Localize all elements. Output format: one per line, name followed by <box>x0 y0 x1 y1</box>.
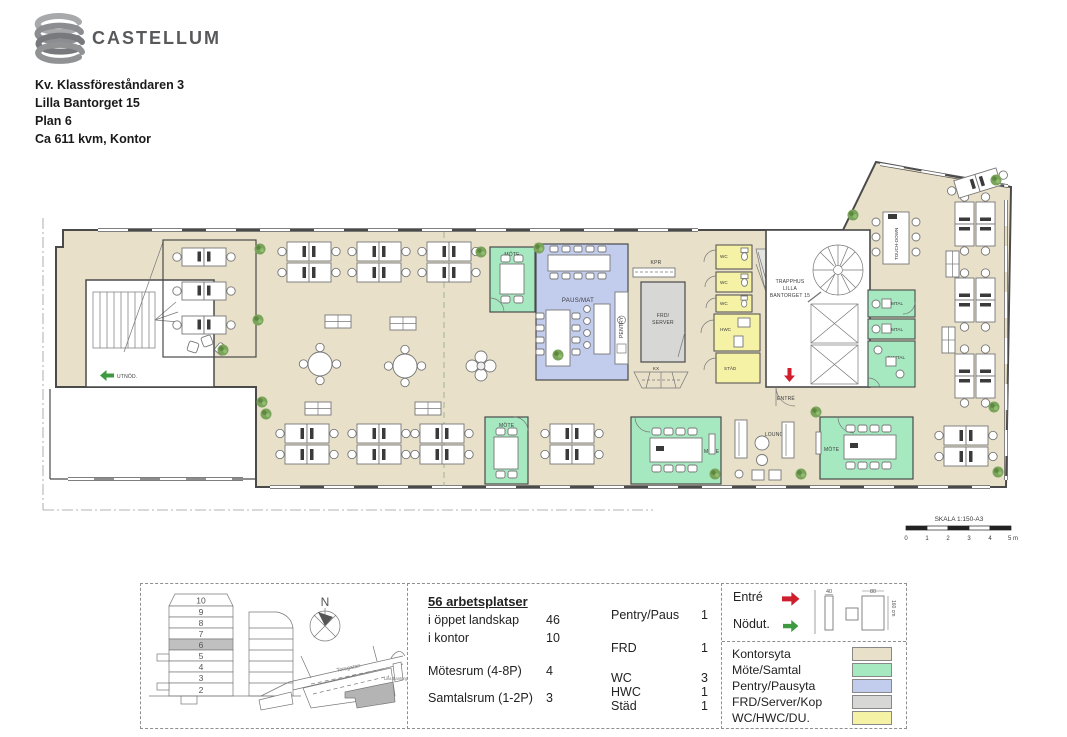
svg-text:7: 7 <box>199 629 204 639</box>
svg-text:STÄD: STÄD <box>724 365 737 371</box>
stat-value: 1 <box>701 608 708 622</box>
legend-row-kontorsyta: Kontorsyta <box>732 646 896 662</box>
scale-bar: SKALA 1:150-A3 0 1 2 3 4 5 m <box>904 516 1018 542</box>
svg-text:KX: KX <box>653 366 659 371</box>
svg-text:KPR: KPR <box>651 260 662 266</box>
area-label: Ca 611 kvm, Kontor <box>35 130 184 148</box>
project-name: Kv. Klassföreståndaren 3 <box>35 76 184 94</box>
svg-text:1: 1 <box>925 536 929 542</box>
room-frd-server: FRD/ SERVER <box>641 282 685 362</box>
room-mote-large-2: MÖTE <box>816 417 913 479</box>
svg-text:3: 3 <box>199 673 204 683</box>
street-label: Torsgatan <box>336 663 361 674</box>
svg-text:WC: WC <box>720 254 728 259</box>
legend-row-frd-server-kop: FRD/Server/Kop <box>732 694 896 710</box>
stat-label: Mötesrum (4-8P) <box>428 664 522 678</box>
svg-text:BANTORGET 15: BANTORGET 15 <box>770 293 810 299</box>
swatch-kontorsyta <box>853 648 892 661</box>
svg-text:9: 9 <box>199 607 204 617</box>
stat-label: WC <box>611 671 632 685</box>
svg-text:HWC: HWC <box>720 327 732 332</box>
stat-value: 1 <box>701 699 708 713</box>
room-trapphus: TRAPPHUS LILLA BANTORGET 15 <box>766 230 870 406</box>
legend-row-mote-samtal: Möte/Samtal <box>732 662 896 678</box>
svg-text:2: 2 <box>199 685 204 695</box>
svg-text:8: 8 <box>199 618 204 628</box>
svg-text:3: 3 <box>967 536 971 542</box>
stat-label: i öppet landskap <box>428 613 519 627</box>
room-mote-large-1: MÖTE <box>631 417 721 484</box>
legend-row-pentry-pausyta: Pentry/Pausyta <box>732 678 896 694</box>
svg-text:5 m: 5 m <box>1008 536 1018 542</box>
svg-text:PAUS/MAT: PAUS/MAT <box>562 298 594 304</box>
legend-entre-arrow <box>782 592 800 606</box>
svg-text:TOUCH-DOWN: TOUCH-DOWN <box>894 228 899 260</box>
svg-text:4: 4 <box>199 662 204 672</box>
svg-text:SERVER: SERVER <box>652 320 674 326</box>
legend-nodut-arrow <box>783 620 798 632</box>
svg-text:80: 80 <box>870 589 876 595</box>
drawing-title-block: Kv. Klassföreståndaren 3 Lilla Bantorget… <box>35 76 184 148</box>
swatch-mote-samtal <box>853 664 892 677</box>
stat-label: HWC <box>611 685 641 699</box>
swatch-frd-server-kop <box>853 696 892 709</box>
stats-title: 56 arbetsplatser <box>428 594 528 609</box>
stat-label: i kontor <box>428 631 469 645</box>
neighbour-walls <box>50 389 256 479</box>
stats-box: 56 arbetsplatser i öppet landskap 46 i k… <box>407 583 724 729</box>
rooms-samtal: SAMTAL SAMTAL SAMTAL <box>868 290 915 387</box>
compass: N <box>310 595 340 641</box>
overview-box: 10 9 8 7 6 5 4 3 2 N Torsgatan Li <box>140 583 410 729</box>
place-label: Lilla Bantorget <box>384 676 407 681</box>
svg-text:LILLA: LILLA <box>783 286 798 292</box>
svg-text:10: 10 <box>196 596 206 606</box>
svg-text:TRAPPHUS: TRAPPHUS <box>776 279 805 285</box>
stat-label: Samtalsrum (1-2P) <box>428 691 533 705</box>
svg-text:WC: WC <box>720 301 728 306</box>
room-paus-mat: PAUS/MAT PENTRY <box>536 244 628 380</box>
svg-text:MÖTE: MÖTE <box>824 446 840 453</box>
entre-label: ENTRÉ <box>777 395 795 402</box>
svg-text:WC: WC <box>720 280 728 285</box>
stat-label: Städ <box>611 699 637 713</box>
stat-value: 4 <box>546 664 553 678</box>
svg-text:6: 6 <box>199 640 204 650</box>
svg-text:N: N <box>321 595 330 609</box>
castellum-logo <box>33 12 89 64</box>
svg-text:4: 4 <box>988 536 992 542</box>
overview-graphics: 10 9 8 7 6 5 4 3 2 N Torsgatan Li <box>141 584 407 726</box>
stat-value: 1 <box>701 685 708 699</box>
svg-text:40: 40 <box>826 589 832 595</box>
swatch-pentry-pausyta <box>853 680 892 693</box>
area-legend: Kontorsyta Möte/Samtal Pentry/Pausyta FR… <box>732 646 896 726</box>
stat-value: 1 <box>701 641 708 655</box>
legend-symbols: Entré Nödut. 40 80 160 cm <box>722 584 906 642</box>
room-mote-small-bottom: MÖTE <box>485 417 528 484</box>
room-mote-small-top: MÖTE <box>490 247 535 312</box>
street-address: Lilla Bantorget 15 <box>35 94 184 112</box>
svg-text:PENTRY: PENTRY <box>619 316 625 338</box>
stat-value: 46 <box>546 613 560 627</box>
legend-row-wc-hwc-du: WC/HWC/DU. <box>732 710 896 726</box>
svg-text:160 cm: 160 cm <box>890 600 896 616</box>
svg-text:FRD/: FRD/ <box>657 313 670 319</box>
svg-text:0: 0 <box>904 536 908 542</box>
svg-text:2: 2 <box>946 536 950 542</box>
svg-text:SKALA 1:150-A3: SKALA 1:150-A3 <box>935 516 984 523</box>
stat-value: 10 <box>546 631 560 645</box>
floor-label: Plan 6 <box>35 112 184 130</box>
stat-value: 3 <box>546 691 553 705</box>
desk-dimension-symbols: 40 80 160 cm <box>825 589 896 630</box>
utnod-label: UTNÖD. <box>117 373 137 380</box>
legend-box: Entré Nödut. 40 80 160 cm Kontorsyta <box>721 583 907 729</box>
swatch-wc-hwc-du <box>853 712 892 725</box>
stat-value: 3 <box>701 671 708 685</box>
brand-name: CASTELLUM <box>92 28 221 49</box>
stat-label: Pentry/Paus <box>611 608 679 622</box>
stat-label: FRD <box>611 641 637 655</box>
svg-text:5: 5 <box>199 651 204 661</box>
floor-plan: MÖTE PAUS/MAT PENTRY KPR FRD/ SE <box>38 152 1028 557</box>
